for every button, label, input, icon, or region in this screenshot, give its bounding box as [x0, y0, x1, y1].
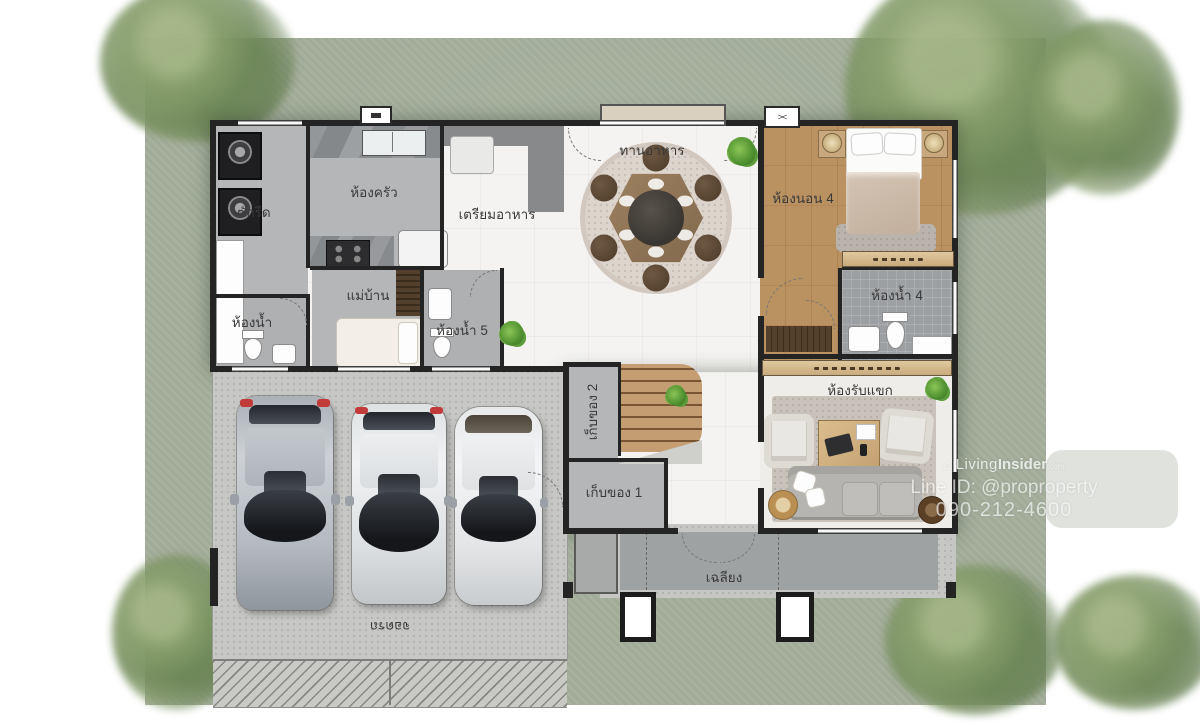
room-label-bathroom: ห้องน้ำ — [232, 311, 272, 333]
window — [432, 366, 490, 372]
room-label-storage1: เก็บของ 1 — [586, 481, 643, 503]
bed-blanket — [846, 172, 920, 234]
watermark-line-id: Line ID: @proproperty — [896, 476, 1112, 499]
room-label-storage2: เก็บของ 2 — [581, 384, 603, 441]
wall-segment — [306, 294, 310, 368]
washing-machine — [218, 132, 262, 180]
room-label-porch: เฉลียง — [706, 566, 743, 588]
watermark: ⌂ LivingInsider.com Line ID: @propropert… — [896, 456, 1112, 522]
wall-segment — [214, 294, 308, 298]
porch-column — [620, 592, 656, 642]
room-label-bathroom4: ห้องน้ำ 4 — [871, 284, 923, 306]
car-mirror — [345, 496, 353, 506]
potted-plant — [926, 378, 948, 400]
prep-cabinet — [450, 136, 494, 174]
car-windshield — [244, 490, 327, 541]
porch-joint — [646, 532, 648, 590]
wall-segment — [210, 120, 216, 372]
sink-divider — [392, 132, 393, 152]
bathroom5-sink — [428, 288, 452, 320]
bed-pillow — [850, 132, 883, 156]
transom-ornament — [814, 367, 900, 370]
tree — [1030, 20, 1180, 195]
phone — [860, 444, 867, 456]
stairs — [618, 364, 680, 452]
bedside-lamp — [822, 133, 842, 153]
potted-plant — [500, 322, 524, 346]
driveway-divider — [389, 659, 391, 705]
car-rear-window — [249, 405, 322, 424]
wall-segment — [664, 458, 668, 532]
side-table-round — [768, 490, 798, 520]
ac-unit: >< — [764, 106, 800, 128]
window — [338, 366, 410, 372]
room-label-laundry: ซักรีด — [237, 201, 270, 223]
maid-pillow — [398, 322, 418, 364]
tree — [1055, 575, 1200, 710]
prep-counter — [528, 126, 564, 212]
wall-segment — [440, 124, 444, 270]
wall-segment — [210, 120, 958, 126]
car-mirror — [230, 494, 239, 505]
wall-segment — [563, 362, 621, 367]
kitchen-sink — [362, 130, 426, 156]
car-mirror — [449, 498, 457, 508]
room-label-food-prep: เตรียมอาหาร — [459, 203, 536, 225]
watermark-brand-bold: Insider — [998, 456, 1047, 473]
porch-joint — [778, 532, 780, 590]
watermark-brand-line: ⌂ LivingInsider.com — [896, 456, 1112, 476]
bedside-lamp — [924, 133, 944, 153]
maid-wardrobe — [396, 270, 420, 316]
vent-mark — [371, 113, 381, 118]
papers — [856, 424, 876, 440]
wall-segment — [563, 582, 573, 598]
wall-segment — [420, 268, 424, 368]
window — [952, 160, 958, 238]
window — [952, 282, 958, 334]
room-label-bathroom5: ห้องน้ำ 5 — [436, 319, 488, 341]
watermark-phone: 090-212-4600 — [896, 499, 1112, 522]
stairs-round-end — [680, 364, 702, 452]
room-label-living: ห้องรับแขก — [827, 379, 893, 401]
car-suv-gray — [237, 396, 333, 610]
wall-segment — [758, 120, 764, 278]
wall-segment — [838, 268, 842, 362]
transom-ornament — [873, 258, 924, 261]
washer-drum — [228, 140, 252, 164]
wall-segment — [760, 354, 958, 359]
sofa-cushion — [842, 482, 878, 516]
window — [238, 120, 302, 126]
bathroom-sink — [272, 344, 296, 364]
sliding-door-glass — [600, 120, 724, 126]
watermark-brand-prefix: Living — [956, 456, 998, 473]
place-setting — [648, 179, 664, 190]
sliding-door-glass — [818, 528, 922, 534]
wall-segment — [946, 582, 956, 598]
bathroom4-sink — [848, 326, 880, 352]
window — [232, 366, 288, 372]
potted-plant — [728, 138, 756, 166]
wall-segment — [563, 528, 678, 534]
room-label-kitchen: ห้องครัว — [350, 181, 397, 203]
potted-plant — [666, 386, 686, 406]
floorplan-image: >< ซักรีด ห้องครัว เตรียมอาหาร ทานอาหาร … — [0, 0, 1200, 725]
dining-table-center — [628, 190, 684, 246]
car-suv-white — [352, 404, 446, 604]
car-rear-window — [363, 412, 434, 430]
wall-segment — [618, 366, 621, 456]
room-label-dining: ทานอาหาร — [619, 139, 684, 161]
living-transom — [762, 360, 952, 376]
ac-pad — [574, 532, 618, 594]
dining-chair — [643, 265, 670, 292]
bedroom-wardrobe — [766, 326, 832, 352]
ac-symbol: >< — [778, 112, 787, 122]
wall-segment — [563, 362, 569, 534]
room-label-parking: จอดรถ — [370, 616, 410, 638]
wall-segment — [210, 548, 218, 606]
car-mirror — [331, 494, 340, 505]
wall-segment — [500, 268, 504, 368]
room-label-bedroom4: ห้องนอน 4 — [772, 187, 833, 209]
dining-chair — [591, 235, 618, 262]
watermark-brand-tld: .com — [1047, 462, 1064, 471]
car-rear-window — [465, 415, 531, 433]
bed-pillow — [883, 132, 916, 156]
stove — [326, 240, 370, 267]
bathroom4-transom — [842, 251, 954, 267]
porch-column — [776, 592, 814, 642]
tail-light — [317, 399, 330, 406]
room-label-maid: แม่บ้าน — [347, 284, 390, 306]
livinginsider-logo-icon: ⌂ — [944, 457, 952, 472]
wall-segment — [306, 124, 310, 268]
dining-chair — [695, 175, 722, 202]
vent-box — [360, 106, 392, 125]
car-windshield — [359, 492, 440, 552]
dining-chair — [591, 175, 618, 202]
place-setting — [648, 247, 664, 258]
armchair — [764, 414, 814, 468]
wall-segment — [563, 458, 668, 462]
laundry-counter — [216, 240, 244, 364]
dining-chair — [695, 235, 722, 262]
car-windshield — [461, 494, 536, 542]
